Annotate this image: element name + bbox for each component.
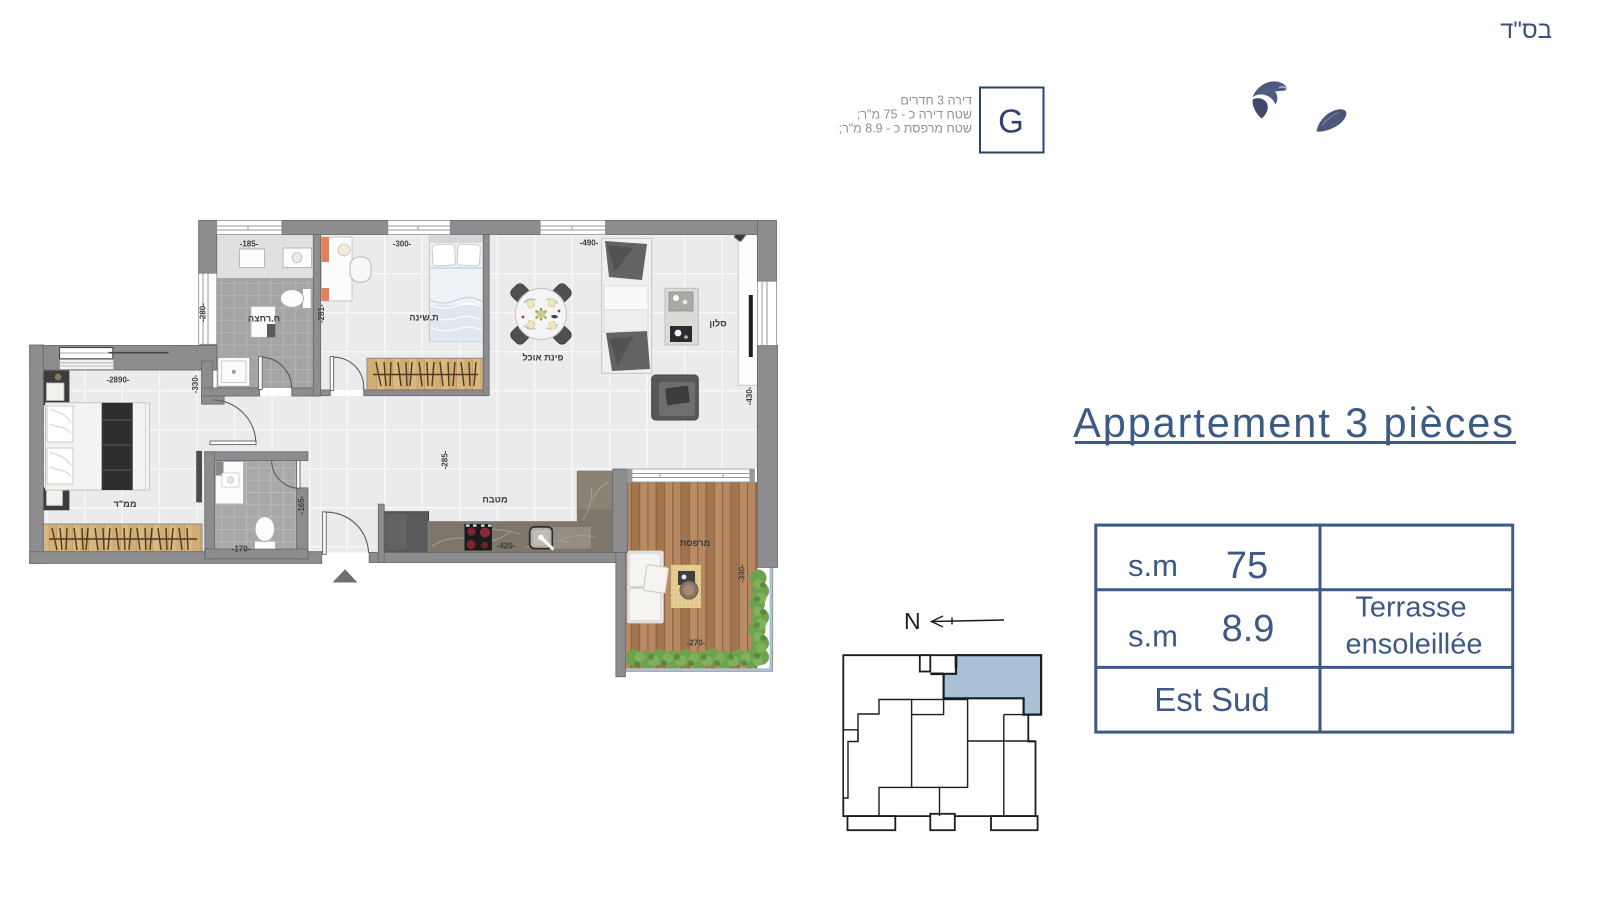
svg-text:-281-: -281- [317,304,326,323]
svg-text:-340-: -340- [738,564,747,583]
svg-text:-300-: -300- [393,240,412,249]
svg-text:-170-: -170- [232,545,251,554]
svg-text:Est Sud: Est Sud [1154,681,1270,718]
svg-text:s.m: s.m [1128,548,1178,583]
svg-text:ת.שינה: ת.שינה [409,313,439,323]
svg-text:-185-: -185- [240,240,259,249]
svg-text:מטבח: מטבח [482,495,507,505]
svg-text:-490-: -490- [580,239,599,248]
svg-text:שטח דירה כ - 75 מ"ר;: שטח דירה כ - 75 מ"ר; [857,108,972,122]
svg-text:N: N [904,608,921,634]
svg-text:שטח מרפסת כ - 8.9 מ"ר;: שטח מרפסת כ - 8.9 מ"ר; [839,122,972,136]
svg-text:מרפסת: מרפסת [680,538,711,548]
svg-text:בס"ד: בס"ד [1500,17,1552,44]
svg-text:G: G [998,103,1024,140]
svg-text:דירה 3 חדרים: דירה 3 חדרים [900,94,972,108]
svg-text:75: 75 [1226,545,1268,587]
svg-text:-270-: -270- [687,639,706,648]
svg-text:-2890-: -2890- [106,375,129,384]
svg-text:ensoleillée: ensoleillée [1345,629,1482,661]
svg-text:-330-: -330- [191,374,200,393]
svg-text:s.m: s.m [1128,619,1178,654]
svg-text:ממ"ד: ממ"ד [113,499,136,509]
svg-text:-285-: -285- [441,450,450,469]
svg-text:סלון: סלון [709,319,726,329]
svg-text:ח.רחצה: ח.רחצה [248,314,280,324]
svg-text:-280-: -280- [199,303,208,322]
svg-text:-430-: -430- [745,386,754,405]
svg-text:8.9: 8.9 [1222,608,1275,650]
svg-text:-420-: -420- [497,542,516,551]
svg-text:-165-: -165- [297,495,306,514]
svg-text:פינת אוכל: פינת אוכל [522,353,563,363]
svg-text:Appartement 3 pièces: Appartement 3 pièces [1073,399,1515,446]
svg-text:Terrasse: Terrasse [1355,592,1466,624]
